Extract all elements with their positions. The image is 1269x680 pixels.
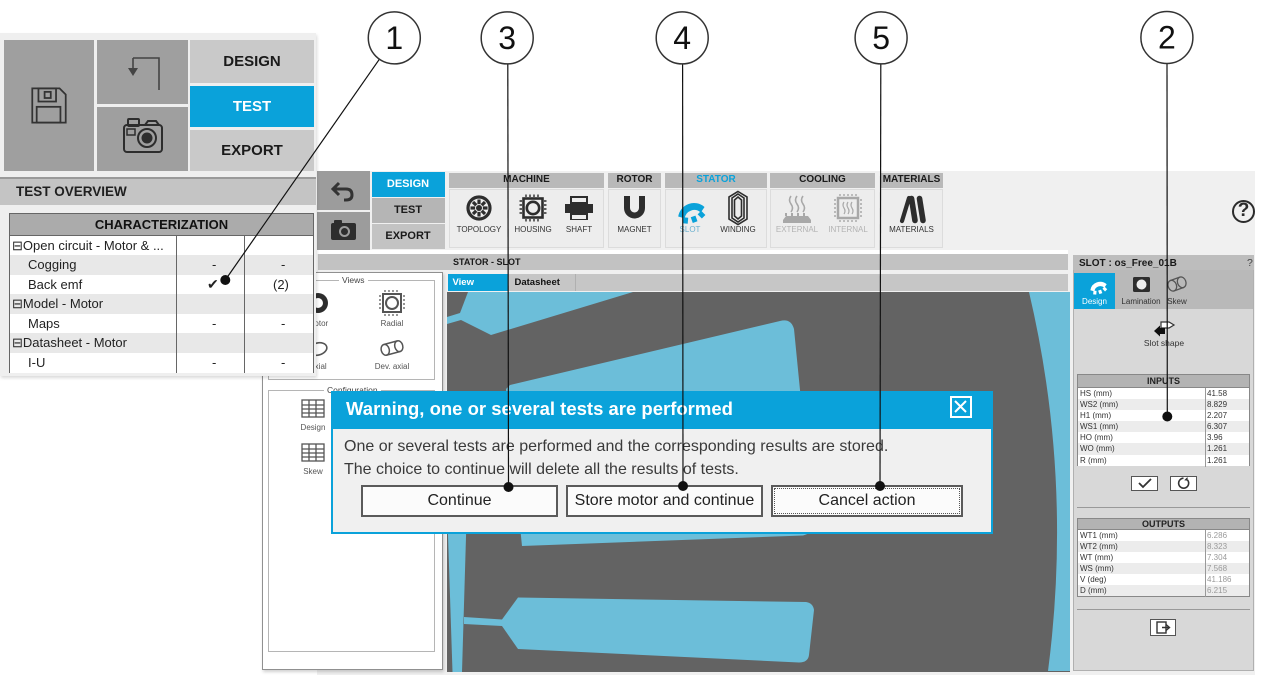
svg-text:1: 1 (385, 20, 403, 56)
svg-text:4: 4 (673, 20, 691, 56)
svg-text:3: 3 (498, 20, 516, 56)
svg-text:2: 2 (1158, 20, 1176, 56)
svg-text:5: 5 (872, 20, 890, 56)
